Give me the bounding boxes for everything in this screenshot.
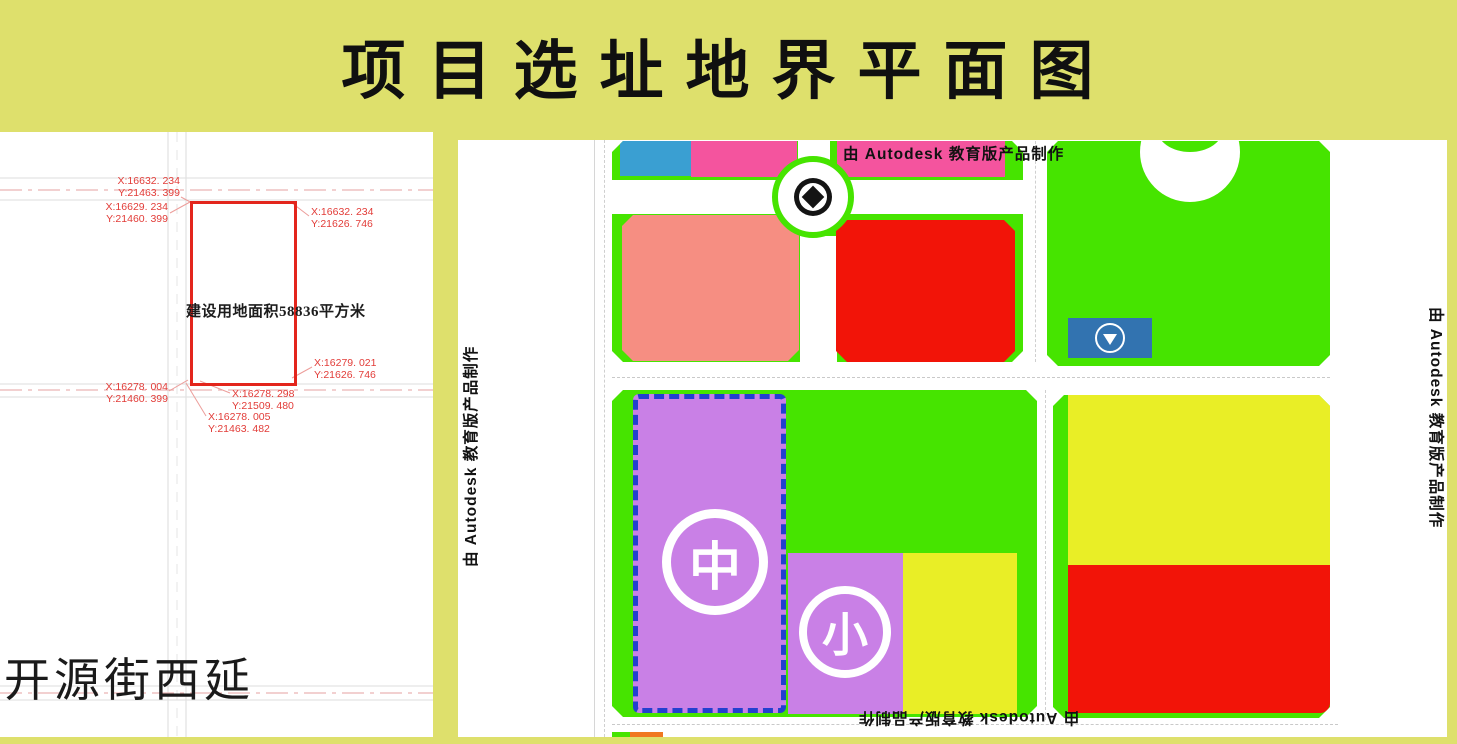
primary-school-label: 小 xyxy=(822,599,868,665)
coord-y: Y:21463. 482 xyxy=(208,424,270,436)
coord-label: X:16278. 005 Y:21463. 482 xyxy=(208,412,270,435)
coord-y: Y:21460. 399 xyxy=(100,214,168,226)
zoning-map-panel: 中 小 xyxy=(458,140,1447,737)
zone-yellow-small xyxy=(903,553,1017,714)
middle-school-badge: 中 xyxy=(662,509,768,615)
coord-y: Y:21626. 746 xyxy=(314,370,376,382)
lane-line-dashed xyxy=(604,140,605,737)
greenery-block-lower-right xyxy=(1053,395,1330,718)
parking-sign xyxy=(1068,318,1152,358)
coord-x: X:16278. 298 xyxy=(232,389,294,401)
zone-blue xyxy=(620,141,691,176)
autodesk-watermark-top: 由 Autodesk 教育版产品制作 xyxy=(843,142,1064,164)
greenery-block-upper-left xyxy=(612,141,1023,362)
triangle-down-icon xyxy=(1103,334,1117,345)
greenery-block-upper-right xyxy=(1047,141,1330,366)
greenery-block-lower-left: 中 小 xyxy=(612,390,1037,717)
coord-label: X:16632. 234 Y:21463. 399 xyxy=(112,176,180,199)
coord-label: X:16629. 234 Y:21460. 399 xyxy=(100,202,168,225)
coord-x: X:16629. 234 xyxy=(100,202,168,214)
coord-y: Y:21463. 399 xyxy=(112,188,180,200)
middle-school-parcel: 中 xyxy=(633,394,786,713)
roundabout-icon-ring xyxy=(799,183,827,211)
coord-x: X:16278. 005 xyxy=(208,412,270,424)
zone-salmon xyxy=(622,215,799,361)
primary-school-badge: 小 xyxy=(799,586,891,678)
autodesk-watermark-bottom: 由 Autodesk 教育版产品制作 xyxy=(858,708,1079,730)
coord-y: Y:21626. 746 xyxy=(311,219,373,231)
coord-label: X:16278. 298 Y:21509. 480 xyxy=(232,389,294,412)
lane-line xyxy=(594,140,595,737)
coord-y: Y:21460. 399 xyxy=(100,394,168,406)
diamond-icon xyxy=(802,186,825,209)
page-title: 项目选址地界平面图 xyxy=(0,0,1457,132)
road-vertical-south xyxy=(800,236,837,362)
zone-orange-sliver xyxy=(630,732,663,737)
roundabout xyxy=(772,156,854,238)
roundabout-icon xyxy=(794,178,832,216)
boundary-survey-panel: 建设用地面积58836平方米 开源街西延 X:16632. 234 Y:2146… xyxy=(0,132,433,737)
coord-label: X:16632. 234 Y:21626. 746 xyxy=(311,207,373,230)
site-boundary-rect xyxy=(190,201,297,386)
coord-x: X:16279. 021 xyxy=(314,358,376,370)
triangle-circle-icon xyxy=(1095,323,1125,353)
coord-label: X:16278. 004 Y:21460. 399 xyxy=(100,382,168,405)
primary-school-parcel: 小 xyxy=(788,553,903,714)
autodesk-watermark-right: 由 Autodesk 教育版产品制作 xyxy=(1426,307,1448,553)
lane-line-dashed xyxy=(1045,390,1046,720)
stadium-field xyxy=(1157,141,1223,152)
road-centerline xyxy=(612,377,1330,378)
coord-label: X:16279. 021 Y:21626. 746 xyxy=(314,358,376,381)
site-plan-sheet: 项目选址地界平面图 xyxy=(0,0,1457,744)
lane-line-dashed xyxy=(1035,141,1036,362)
coord-x: X:16632. 234 xyxy=(112,176,180,188)
land-area-label: 建设用地面积58836平方米 xyxy=(186,300,366,321)
coord-x: X:16632. 234 xyxy=(311,207,373,219)
zone-yellow-large xyxy=(1068,395,1330,565)
zone-red-upper xyxy=(836,220,1015,362)
coord-x: X:16278. 004 xyxy=(100,382,168,394)
zone-green-sliver xyxy=(612,732,630,737)
middle-school-label: 中 xyxy=(689,525,741,600)
stadium-icon xyxy=(1140,141,1240,202)
street-name-label: 开源街西延 xyxy=(4,644,254,710)
zone-red-lower xyxy=(1068,565,1330,713)
autodesk-watermark-left: 由 Autodesk 教育版产品制作 xyxy=(459,327,481,567)
